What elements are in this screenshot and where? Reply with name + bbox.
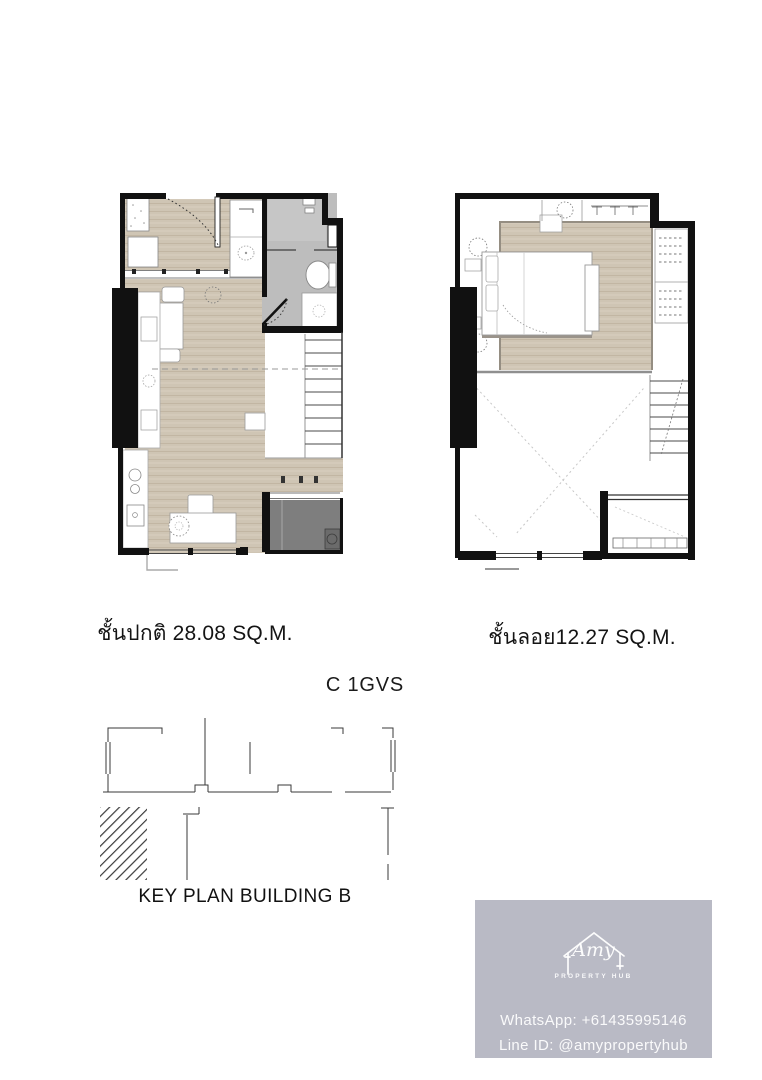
brand-contacts: WhatsApp: +61435995146 Line ID: @amyprop… <box>499 1008 688 1058</box>
caption-mezzanine-floor: ชั้นลอย12.27 SQ.M. <box>462 621 702 654</box>
key-plan-label: KEY PLAN BUILDING B <box>125 886 365 908</box>
kitchenette-counter <box>230 200 263 277</box>
toilet-icon <box>306 261 330 289</box>
brand-logo: Amy PROPERTY HUB <box>554 926 634 984</box>
ac-condenser-icon <box>613 538 687 548</box>
unit-location-hatch <box>100 807 147 880</box>
brand-card: Amy PROPERTY HUB WhatsApp: +61435995146 … <box>475 900 712 1058</box>
caption-ground-floor: ชั้นปกติ 28.08 SQ.M. <box>75 617 315 650</box>
vanity-sink <box>302 293 337 329</box>
floorplan-flyer-page: ชั้นปกติ 28.08 SQ.M. ชั้นลอย12.27 SQ.M. … <box>0 0 762 1080</box>
whatsapp-contact: WhatsApp: +61435995146 <box>499 1008 688 1033</box>
floorplan-ground <box>100 185 350 580</box>
floorplan-mezzanine <box>445 185 700 580</box>
unit-type-label: C 1GVS <box>295 674 435 697</box>
balcony <box>268 500 343 552</box>
wardrobe <box>655 229 688 323</box>
line-id-contact: Line ID: @amypropertyhub <box>499 1033 688 1058</box>
bed-icon <box>482 252 599 338</box>
shaft-niche <box>328 225 337 247</box>
washing-machine-icon <box>127 198 149 231</box>
stairs <box>645 375 688 461</box>
key-plan-drawing <box>95 712 400 884</box>
brand-logo-name: Amy <box>554 939 634 961</box>
stool-icon <box>169 516 189 536</box>
brand-logo-subtitle: PROPERTY HUB <box>534 973 654 980</box>
entry-cabinet <box>128 237 158 267</box>
